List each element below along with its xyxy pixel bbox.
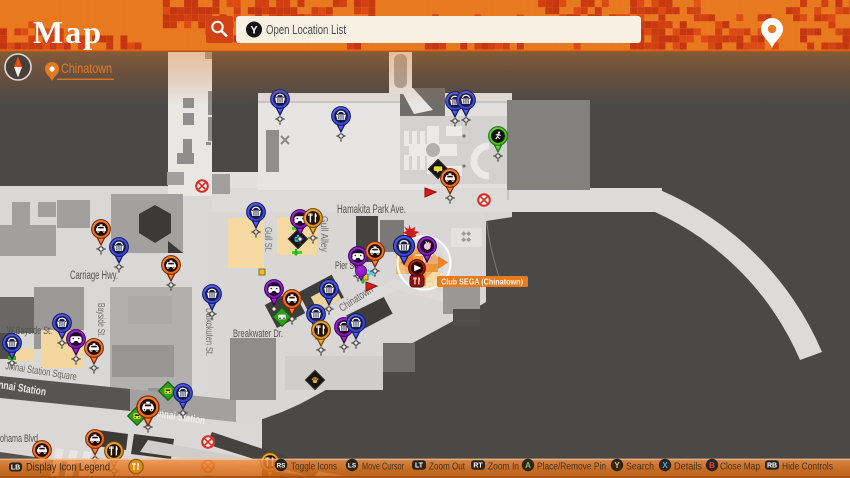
- svg-text:Open Location List: Open Location List: [266, 23, 346, 37]
- svg-text:RB: RB: [767, 463, 777, 470]
- svg-text:Breakwater Dr.: Breakwater Dr.: [233, 328, 283, 340]
- svg-text:Bayside St.: Bayside St.: [95, 303, 107, 337]
- svg-text:RS: RS: [277, 463, 287, 470]
- svg-text:Zoom In: Zoom In: [488, 461, 519, 472]
- svg-text:X: X: [662, 461, 668, 470]
- svg-text:Carriage Hwy.: Carriage Hwy.: [70, 270, 118, 282]
- svg-text:B: B: [709, 461, 715, 470]
- svg-text:Chinatown: Chinatown: [61, 60, 112, 76]
- svg-text:Details: Details: [674, 461, 702, 472]
- svg-text:LS: LS: [348, 463, 357, 470]
- svg-text:LT: LT: [415, 463, 424, 470]
- svg-text:Y: Y: [250, 25, 258, 37]
- svg-text:RT: RT: [473, 463, 483, 470]
- svg-text:Display Icon Legend: Display Icon Legend: [26, 462, 110, 474]
- svg-text:LB: LB: [11, 465, 20, 472]
- svg-text:Gull St.: Gull St.: [262, 227, 274, 252]
- svg-text:Toggle Icons: Toggle Icons: [291, 461, 337, 472]
- svg-text:ohama Blvd.: ohama Blvd.: [0, 433, 40, 445]
- svg-text:Zoom Out: Zoom Out: [429, 461, 465, 472]
- svg-text:Move Cursor: Move Cursor: [362, 461, 404, 472]
- svg-text:Search: Search: [626, 461, 654, 472]
- svg-text:A: A: [525, 461, 531, 470]
- svg-text:Close Map: Close Map: [720, 461, 760, 472]
- svg-text:Y: Y: [614, 461, 620, 470]
- svg-text:Map: Map: [33, 14, 103, 50]
- svg-text:Club SEGA (Chinatown): Club SEGA (Chinatown): [441, 277, 523, 287]
- svg-text:Place/Remove Pin: Place/Remove Pin: [537, 461, 606, 472]
- svg-text:Hamakita Park Ave.: Hamakita Park Ave.: [337, 204, 406, 216]
- svg-text:Hide Controls: Hide Controls: [782, 461, 833, 472]
